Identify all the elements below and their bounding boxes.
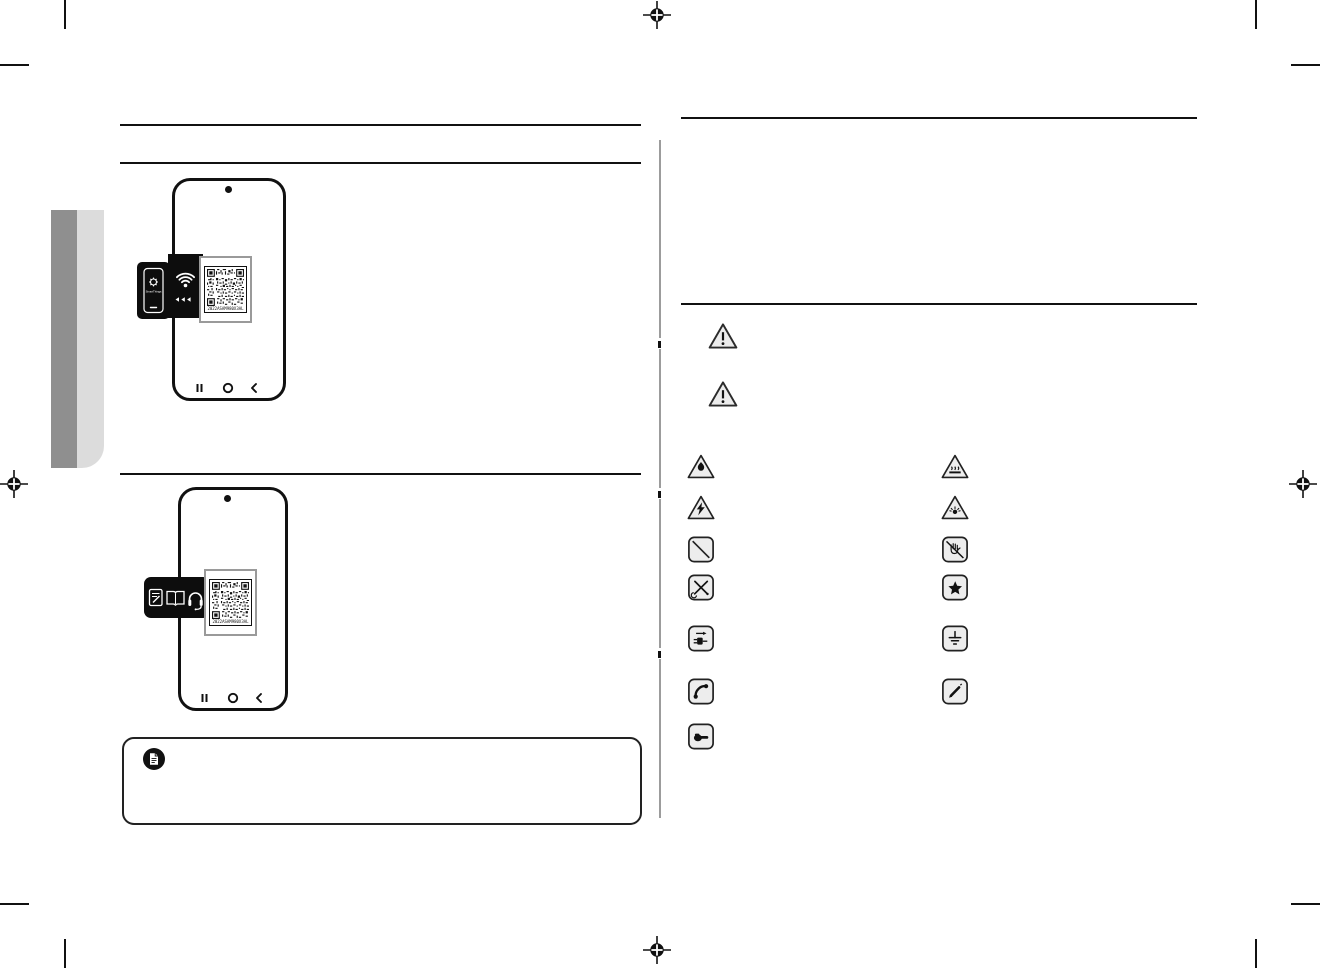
prohibited-icon [687, 536, 715, 563]
manual-page: SmartThings 2022ASAM980X3AL [0, 0, 1320, 968]
qr-serial-text: 2022ASAM980X3AL [207, 306, 243, 311]
hot-surface-icon [941, 453, 969, 480]
note-pencil-icon [941, 678, 969, 705]
section-rule [120, 124, 641, 126]
section-rule [681, 303, 1197, 305]
phone-nav-bar [194, 381, 264, 395]
divider-tick [658, 651, 661, 658]
hand-point-icon [687, 723, 715, 750]
chapter-tab-light [77, 210, 104, 468]
qr-label-frame: 2022ASAM980X3AL [204, 569, 257, 636]
smartthings-label: SmartThings [146, 290, 162, 294]
column-divider [659, 140, 661, 338]
section-rule [120, 473, 641, 475]
service-tab [144, 577, 210, 618]
warranty-card-icon [150, 590, 163, 606]
crop-mark [1255, 939, 1257, 968]
crop-mark [64, 0, 66, 29]
divider-tick [658, 341, 661, 348]
call-service-icon [687, 678, 715, 705]
wifi-panel [168, 254, 203, 318]
qr-serial-text: 2022ASAM980X3AL [212, 619, 248, 624]
crop-mark [0, 903, 29, 905]
crop-mark [1255, 0, 1257, 29]
column-divider [659, 349, 661, 488]
smartthings-gear-icon [149, 278, 158, 287]
ground-icon [941, 625, 969, 652]
divider-tick [658, 491, 661, 498]
do-not-disassemble-icon [687, 574, 715, 601]
column-divider [659, 659, 661, 818]
smartthings-app-card: SmartThings [137, 262, 170, 319]
section-rule [681, 117, 1197, 119]
explosion-hazard-icon [941, 494, 969, 521]
unplug-icon [687, 625, 715, 652]
do-not-touch-icon [941, 536, 969, 563]
flame-hazard-icon [687, 453, 715, 480]
back-arrows-icon [176, 297, 191, 302]
crop-mark [1291, 903, 1320, 905]
phone-nav-bar [199, 691, 269, 705]
warning-triangle [708, 322, 738, 350]
electric-shock-icon [687, 494, 715, 521]
registration-mark-icon [642, 0, 672, 30]
chapter-tab-dark [51, 210, 77, 468]
phone-camera-dot [225, 186, 232, 193]
crop-mark [1291, 64, 1320, 66]
registration-mark-icon [0, 469, 29, 499]
note-document-icon [142, 747, 166, 771]
column-divider [659, 499, 661, 648]
qr-code [207, 269, 244, 306]
registration-mark-icon [1288, 469, 1318, 499]
follow-instructions-icon [941, 574, 969, 601]
crop-mark [0, 64, 29, 66]
registration-mark-icon [642, 935, 672, 965]
note-box [122, 737, 642, 825]
crop-mark [64, 939, 66, 968]
section-rule [120, 162, 641, 164]
wifi-icon [177, 274, 194, 283]
qr-code [212, 582, 249, 619]
user-manual-icon [167, 592, 184, 606]
caution-triangle [708, 380, 738, 408]
qr-label-frame: 2022ASAM980X3AL [199, 256, 252, 323]
support-headset-icon [188, 593, 202, 610]
phone-camera-dot [224, 495, 231, 502]
